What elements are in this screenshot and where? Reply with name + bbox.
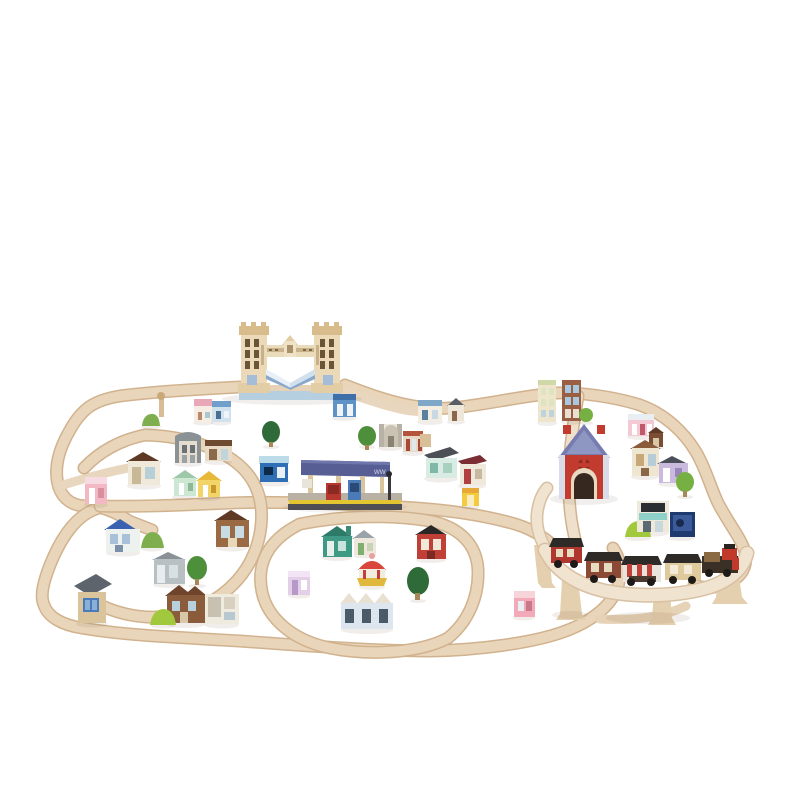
svg-text:ww: ww: [373, 467, 386, 476]
